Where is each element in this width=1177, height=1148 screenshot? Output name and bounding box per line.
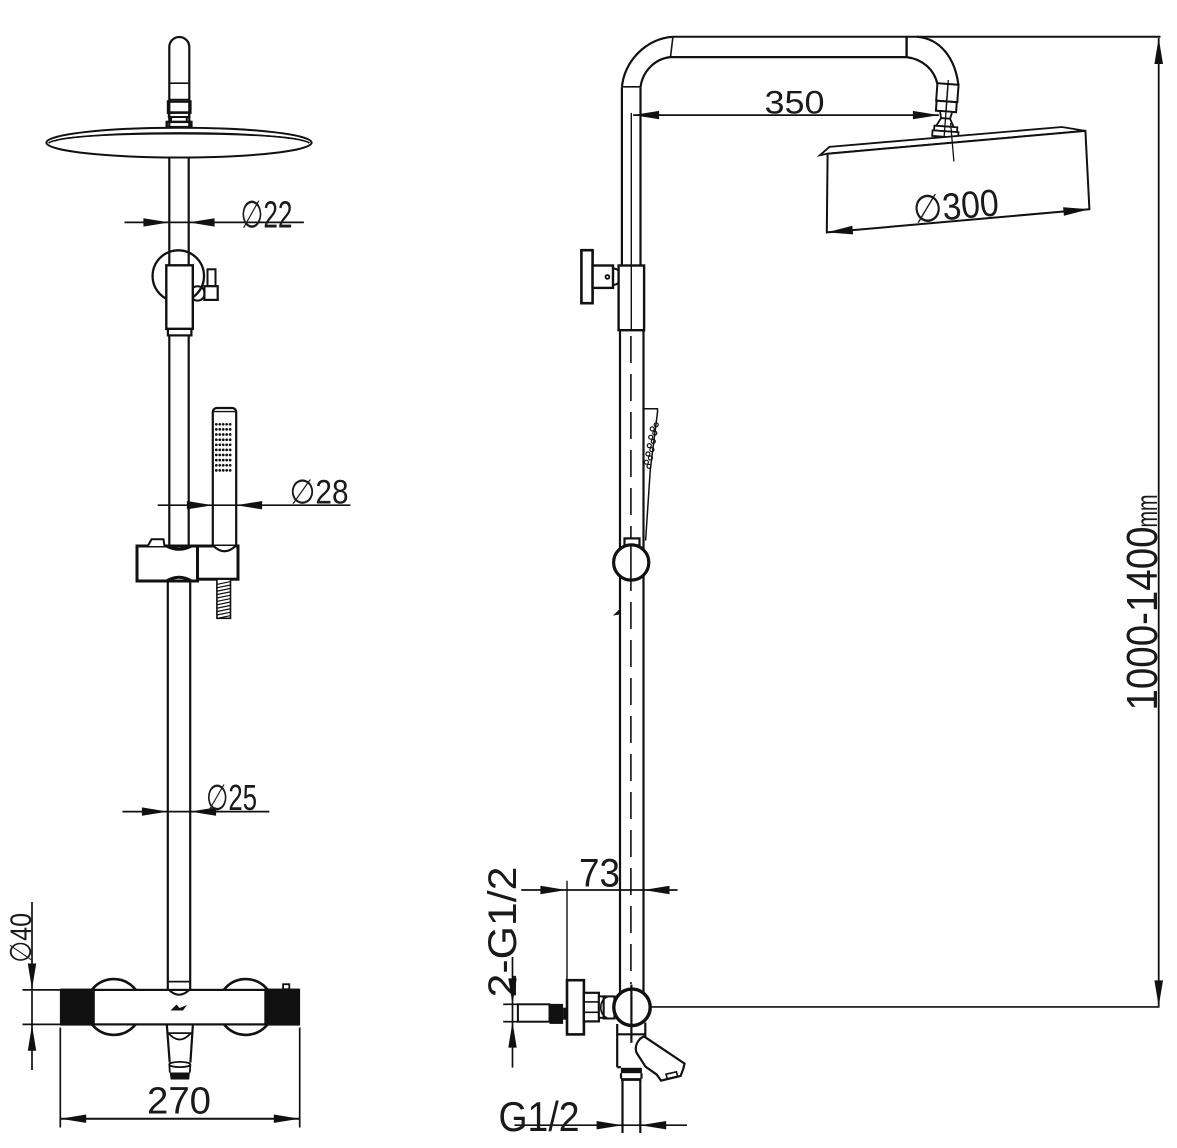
svg-text:350: 350	[765, 85, 825, 121]
svg-text:∅22: ∅22	[241, 195, 293, 237]
svg-text:mm: mm	[1131, 495, 1164, 528]
svg-text:∅28: ∅28	[290, 474, 349, 512]
svg-text:∅25: ∅25	[206, 777, 257, 818]
svg-text:∅40: ∅40	[5, 913, 38, 963]
svg-text:1000-1400: 1000-1400	[1118, 527, 1167, 711]
svg-text:G1/2: G1/2	[499, 1093, 580, 1140]
svg-text:∅300: ∅300	[911, 182, 1000, 231]
svg-text:73: 73	[579, 852, 620, 896]
svg-text:270: 270	[147, 1081, 211, 1123]
svg-text:2-G1/2: 2-G1/2	[481, 867, 525, 998]
